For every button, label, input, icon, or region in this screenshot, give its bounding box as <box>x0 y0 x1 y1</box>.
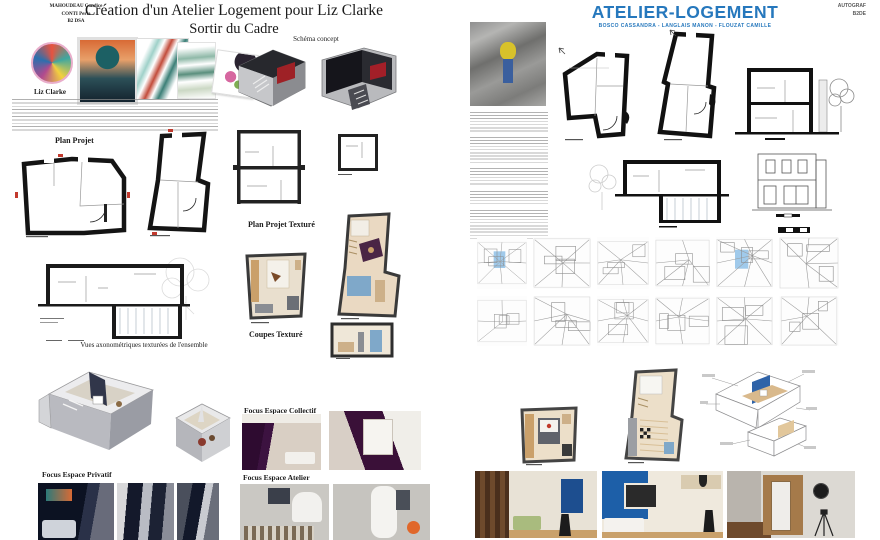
render-window-2 <box>396 490 410 510</box>
render-rug <box>244 526 314 540</box>
elevation-drawing <box>752 148 832 220</box>
textured-plan-1 <box>241 246 311 326</box>
right-floor-plan-2 <box>650 28 728 142</box>
wood-panel <box>475 471 509 538</box>
board-left: MAHOUDEAU Candice CONTI Perla B2 DSA Cré… <box>0 0 440 540</box>
render-collectif-1 <box>242 414 321 470</box>
right-textured-plan-1 <box>516 402 582 466</box>
render-doorway <box>363 419 393 455</box>
scale-bar <box>778 227 810 233</box>
sketch-3 <box>597 237 649 289</box>
render-column <box>371 486 397 538</box>
right-school-block: AUTOGRAF B2DE <box>810 3 866 18</box>
section-1 <box>233 122 305 208</box>
sketch-5 <box>716 237 773 289</box>
render-artwork <box>46 489 72 501</box>
sketch-9 <box>597 296 649 346</box>
camera-tripod <box>809 508 839 538</box>
textured-plan-2 <box>331 210 403 322</box>
schema-model-2 <box>318 46 398 112</box>
right-textured-plan-2 <box>616 366 694 466</box>
floor-plan-1 <box>14 146 132 238</box>
paragraph-2 <box>470 137 548 163</box>
focus-atelier-label: Focus Espace Atelier <box>243 473 310 482</box>
right-text-column <box>470 112 548 240</box>
plan-texture-label: Plan Projet Texturé <box>248 220 315 229</box>
right-long-section <box>615 150 729 228</box>
paragraph-4 <box>470 191 548 205</box>
sketch-7 <box>477 296 527 346</box>
right-render-1 <box>475 471 597 538</box>
left-title-block: Création d'un Atelier Logement pour Liz … <box>78 1 390 39</box>
vues-axo-label: Vues axonométriques texturées de l'ensem… <box>56 341 232 349</box>
sketch-8 <box>533 296 591 346</box>
class-code: B2DE <box>810 11 866 19</box>
schema-concept-label: Schéma concept <box>268 35 364 43</box>
sketch-4 <box>655 237 710 289</box>
plan-projet-label: Plan Projet <box>55 136 94 145</box>
render-orange-chair <box>407 521 420 534</box>
floor-plan-2 <box>138 128 220 238</box>
textured-section <box>330 322 394 360</box>
paragraph-1 <box>470 112 548 132</box>
tree-sketch-right-board <box>583 160 619 212</box>
sketch-10 <box>655 296 710 346</box>
right-title-block: ATELIER-LOGEMENT BOSCO CASSANDRA - LANGL… <box>555 2 815 29</box>
wood-floor <box>509 530 597 538</box>
long-section <box>38 252 190 342</box>
artist-name-label: Liz Clarke <box>24 88 76 96</box>
right-render-3 <box>727 471 855 538</box>
render-alcove <box>292 492 322 522</box>
white-door <box>771 481 791 531</box>
render-atelier-1 <box>240 484 329 540</box>
axonometric-small <box>168 392 234 466</box>
schema-model-1 <box>233 44 309 110</box>
render-bed <box>42 520 76 538</box>
left-title: Création d'un Atelier Logement pour Liz … <box>78 1 390 20</box>
render-privatif-3 <box>177 483 219 540</box>
wood-floor-2 <box>602 532 723 538</box>
render-collectif-2 <box>329 411 421 470</box>
section-2 <box>334 128 382 176</box>
render-privatif-1 <box>38 483 114 540</box>
school-name: AUTOGRAF <box>810 3 866 11</box>
render-window <box>268 488 290 504</box>
climber-jacket <box>500 42 516 60</box>
render-privatif-2 <box>117 483 174 540</box>
sketch-12 <box>779 296 839 346</box>
right-title: ATELIER-LOGEMENT <box>555 2 815 23</box>
tv-screen <box>624 483 658 509</box>
axonometric-large <box>35 356 163 466</box>
right-render-2 <box>602 471 723 538</box>
sketch-6 <box>779 237 839 289</box>
drum-light <box>813 483 829 499</box>
climber-photo <box>470 22 546 106</box>
sketch-grid <box>477 237 859 347</box>
sketch-2 <box>533 237 591 289</box>
render-desk <box>285 452 315 464</box>
paragraph-5 <box>470 210 548 240</box>
right-section-tree <box>735 60 855 144</box>
paragraph-3 <box>470 168 548 186</box>
artwork-1 <box>77 37 138 105</box>
right-floor-plan-1 <box>553 40 635 142</box>
pendant-lamp <box>699 475 707 487</box>
sketch-1 <box>477 237 527 289</box>
focus-privatif-label: Focus Espace Privatif <box>42 470 112 479</box>
blue-wall <box>561 479 583 513</box>
board-right: ATELIER-LOGEMENT BOSCO CASSANDRA - LANGL… <box>440 0 880 540</box>
presentation-boards: MAHOUDEAU Candice CONTI Perla B2 DSA Cré… <box>0 0 880 540</box>
climber-jeans <box>503 59 513 83</box>
green-bench <box>513 516 541 530</box>
sketch-11 <box>716 296 773 346</box>
artwork-3 <box>177 42 216 99</box>
bar-stool <box>559 514 571 536</box>
artist-logo <box>31 42 73 84</box>
coupes-texture-label: Coupes Texturé <box>249 330 303 339</box>
exploded-axonometric <box>700 352 818 466</box>
render-atelier-2 <box>333 484 430 540</box>
